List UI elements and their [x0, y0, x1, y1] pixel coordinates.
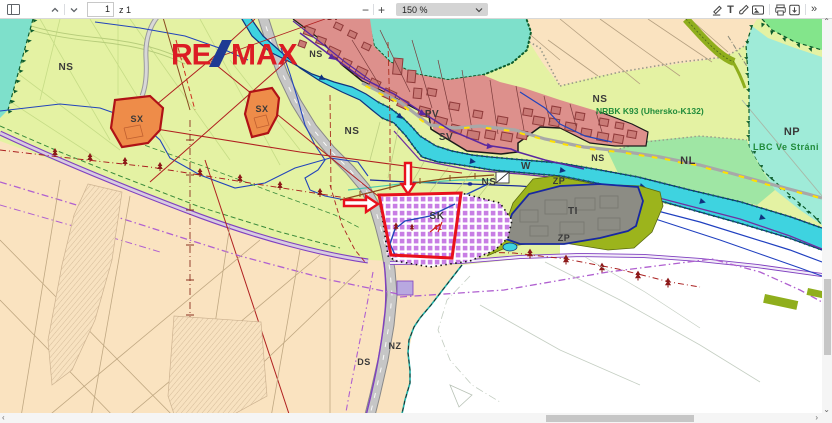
- svg-text:NS: NS: [591, 153, 605, 163]
- svg-text:LBC Ve Stráni: LBC Ve Stráni: [753, 142, 819, 152]
- svg-text:NZ: NZ: [389, 341, 402, 351]
- svg-text:RE: RE: [171, 39, 211, 72]
- svg-text:SV: SV: [326, 19, 339, 22]
- svg-text:SX: SX: [255, 104, 268, 114]
- svg-text:NP: NP: [784, 126, 800, 138]
- svg-text:NS: NS: [593, 94, 608, 105]
- svg-text:PV: PV: [425, 109, 439, 120]
- svg-text:SK: SK: [430, 211, 445, 222]
- svg-text:NS: NS: [482, 177, 497, 188]
- svg-text:NS: NS: [59, 62, 74, 73]
- svg-text:NRBK K93 (Uhersko-K132): NRBK K93 (Uhersko-K132): [596, 106, 704, 116]
- svg-text:ZP: ZP: [553, 176, 566, 186]
- svg-text:MAX: MAX: [231, 39, 298, 72]
- svg-text:TI: TI: [568, 206, 578, 217]
- svg-text:NS: NS: [309, 49, 323, 59]
- svg-text:DS: DS: [357, 357, 371, 367]
- svg-text:SV: SV: [439, 132, 453, 143]
- svg-text:ZP: ZP: [558, 233, 571, 243]
- svg-text:41: 41: [434, 225, 443, 232]
- svg-text:W: W: [521, 161, 531, 172]
- svg-text:NL: NL: [680, 155, 696, 167]
- svg-text:SX: SX: [130, 114, 143, 124]
- svg-text:NS: NS: [345, 126, 360, 137]
